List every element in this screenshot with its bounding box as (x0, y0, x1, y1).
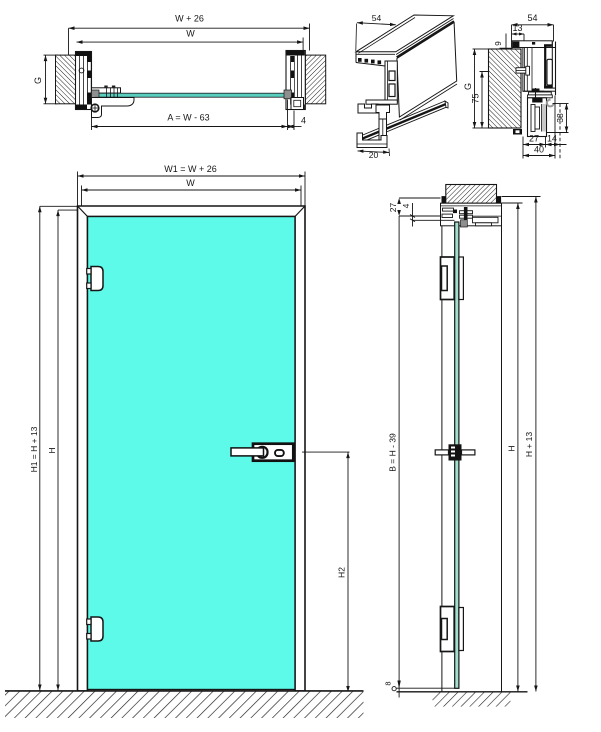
svg-text:75: 75 (471, 93, 481, 103)
svg-text:54: 54 (527, 13, 537, 23)
svg-text:H: H (507, 445, 517, 451)
svg-text:H: H (47, 447, 57, 453)
svg-text:4: 4 (401, 203, 411, 208)
svg-text:54: 54 (372, 13, 382, 23)
svg-text:H1 = H + 13: H1 = H + 13 (29, 426, 39, 472)
svg-text:B = H - 39: B = H - 39 (388, 433, 398, 472)
svg-text:27: 27 (529, 134, 539, 144)
svg-text:W: W (186, 29, 195, 39)
svg-text:27: 27 (388, 203, 398, 213)
svg-text:A = W - 63: A = W - 63 (167, 113, 209, 123)
svg-text:G: G (463, 83, 473, 90)
svg-text:G: G (33, 77, 43, 84)
svg-text:W: W (186, 178, 195, 188)
svg-text:H + 13: H + 13 (524, 432, 534, 458)
svg-text:H2: H2 (337, 567, 347, 578)
svg-text:9: 9 (494, 41, 503, 46)
svg-text:W1 = W + 26: W1 = W + 26 (164, 164, 217, 174)
svg-text:20: 20 (369, 150, 379, 160)
svg-text:W + 26: W + 26 (175, 14, 204, 24)
svg-text:4: 4 (301, 116, 306, 126)
svg-text:13: 13 (512, 23, 522, 33)
svg-text:40: 40 (534, 145, 544, 155)
svg-text:8: 8 (384, 681, 393, 685)
svg-text:14: 14 (547, 134, 557, 144)
